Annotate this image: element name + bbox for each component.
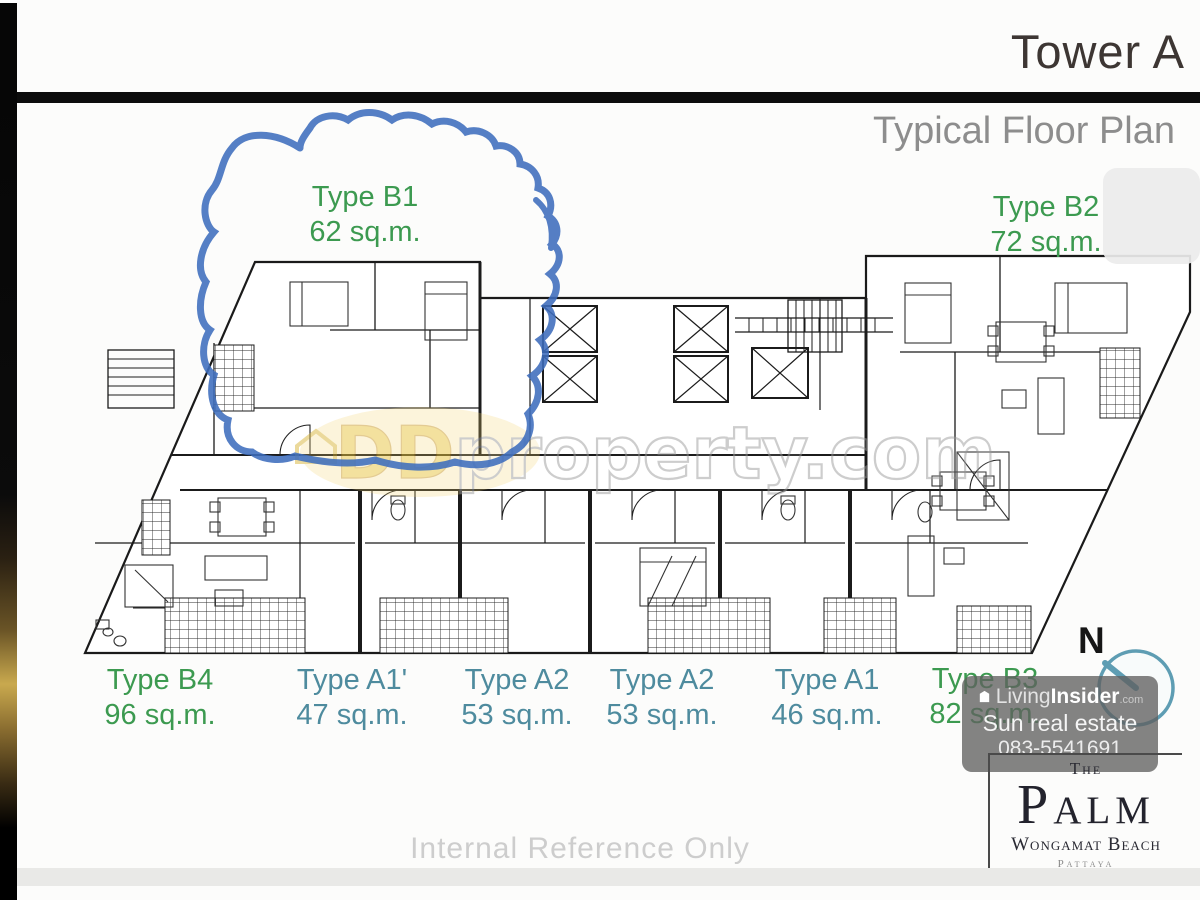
header-divider — [17, 92, 1200, 103]
ddproperty-watermark: DDproperty.com — [297, 407, 996, 497]
agency-name: Sun real estate — [962, 710, 1158, 737]
unit-type: Type A2 — [577, 663, 747, 698]
tower-title: Tower A — [1011, 24, 1185, 79]
bottom-strip — [17, 868, 1200, 886]
floor-plan-slide: DDproperty.com Tower A Typical Floor Pla… — [0, 0, 1200, 900]
unit-type: Type B4 — [75, 663, 245, 698]
project-logo: The Palm Wongamat Beach Pattaya — [988, 753, 1182, 880]
brand-living: Living — [996, 685, 1051, 708]
footer-note: Internal Reference Only — [300, 832, 860, 866]
unit-label-a1: Type A1 46 sq.m. — [742, 663, 912, 733]
livinginsider-brand: LivingInsider.com — [962, 685, 1158, 709]
unit-area: 47 sq.m. — [267, 698, 437, 733]
unit-label-a2-2: Type A2 53 sq.m. — [577, 663, 747, 733]
floor-plan-subtitle: Typical Floor Plan — [873, 110, 1175, 153]
svg-text:DDproperty.com: DDproperty.com — [335, 411, 996, 495]
watermark-dd: DD — [335, 411, 455, 495]
unit-area: 53 sq.m. — [577, 698, 747, 733]
unit-area: 96 sq.m. — [75, 698, 245, 733]
left-edge-strip — [0, 0, 17, 900]
unit-label-a1p: Type A1' 47 sq.m. — [267, 663, 437, 733]
logo-name: Palm — [990, 779, 1182, 832]
unit-type: Type A1' — [267, 663, 437, 698]
unit-area: 46 sq.m. — [742, 698, 912, 733]
unit-label-b4: Type B4 96 sq.m. — [75, 663, 245, 733]
unit-type: Type A1 — [742, 663, 912, 698]
building-icon — [977, 686, 992, 701]
unit-label-b2: Type B2 72 sq.m. — [961, 190, 1131, 260]
unit-area: 62 sq.m. — [280, 215, 450, 250]
logo-location: Wongamat Beach — [990, 834, 1182, 856]
watermark-tld: .com — [802, 411, 997, 495]
unit-type: Type B1 — [280, 180, 450, 215]
unit-area: 72 sq.m. — [961, 225, 1131, 260]
unit-type: Type B2 — [961, 190, 1131, 225]
unit-label-b1: Type B1 62 sq.m. — [280, 180, 450, 250]
brand-insider: Insider — [1051, 685, 1120, 708]
brand-tld: .com — [1119, 694, 1143, 706]
